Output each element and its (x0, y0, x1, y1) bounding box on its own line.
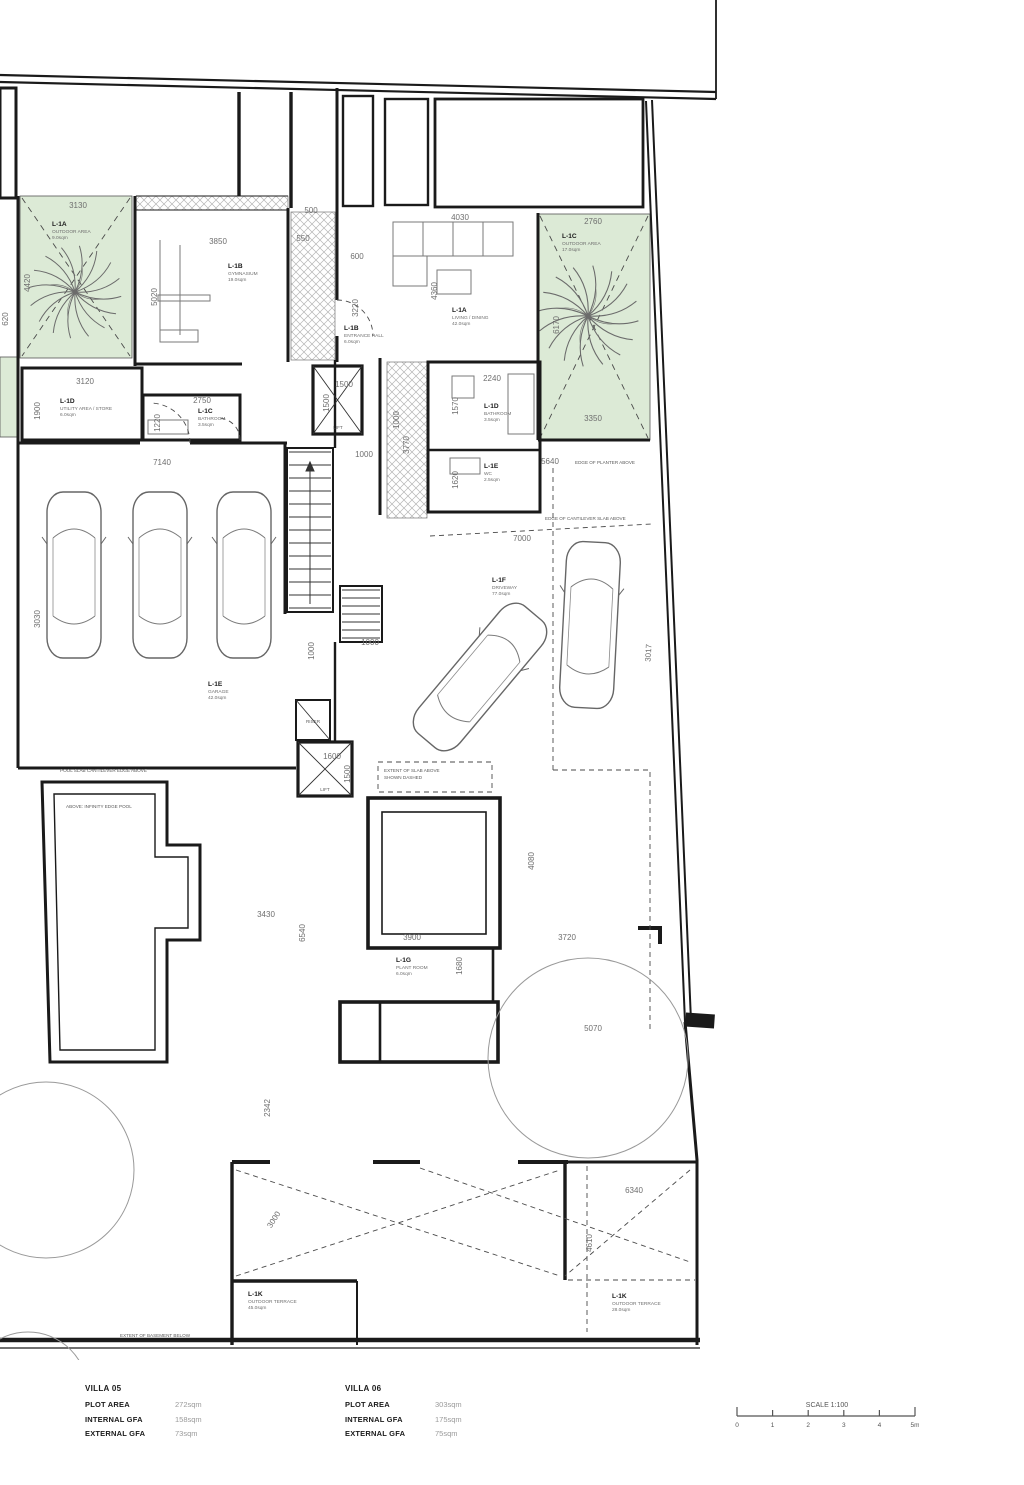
annotation-text: EXTENT OF SLAB ABOVE (384, 768, 440, 773)
dimension-text: 5070 (584, 1024, 602, 1033)
car-symbol (402, 593, 558, 761)
room-label: L-1B GYMNASIUM 19.0sqm (228, 263, 258, 283)
room-label-name: BATHROOM (198, 416, 225, 422)
room-label: L-1D BATHROOM 3.5sqm (484, 403, 511, 423)
room-label-area: 19.0sqm (228, 277, 246, 283)
dimension-text: 1500 (322, 394, 331, 412)
scale-tick-label: 5m (910, 1422, 919, 1429)
table-key: EXTERNAL GFA (345, 1427, 435, 1442)
table-row: INTERNAL GFA 158sqm (85, 1413, 335, 1428)
table-key: INTERNAL GFA (85, 1413, 175, 1428)
dimension-text: 4420 (23, 274, 32, 292)
villa05-title: VILLA 05 (85, 1384, 335, 1393)
room-label-name: OUTDOOR TERRACE (248, 1299, 297, 1305)
dimension-text: 600 (350, 252, 364, 261)
table-row: EXTERNAL GFA 75sqm (345, 1427, 595, 1442)
room-label-name: DRIVEWAY (492, 585, 518, 591)
table-row: PLOT AREA 272sqm (85, 1398, 335, 1413)
room-label-area: 2.5sqm (484, 477, 500, 483)
villa06-summary-table: VILLA 06 PLOT AREA 303sqm INTERNAL GFA 1… (345, 1384, 595, 1442)
room-label-area: 3.5sqm (198, 422, 214, 428)
room-label: L-1G PLANT ROOM 6.0sqm (396, 957, 428, 977)
dimension-text: 3030 (33, 610, 42, 628)
dimension-text: 7140 (153, 458, 171, 467)
table-key: INTERNAL GFA (345, 1413, 435, 1428)
room-label-code: L-1E (208, 681, 223, 688)
table-value: 175sqm (435, 1413, 462, 1428)
annotation-text: ABOVE: INFINITY EDGE POOL (66, 804, 132, 809)
dimension-text: 1000 (392, 411, 401, 429)
dimension-text: 3720 (558, 933, 576, 942)
dimension-text: 1600 (323, 752, 341, 761)
room-label-code: L-1E (484, 463, 499, 470)
villa06-title: VILLA 06 (345, 1384, 595, 1393)
dimension-text: 550 (296, 234, 310, 243)
table-row: PLOT AREA 303sqm (345, 1398, 595, 1413)
annotation-text: SHOWN DASHED (384, 775, 423, 780)
room-label-name: OUTDOOR AREA (562, 241, 601, 247)
dimension-text: 1570 (451, 397, 460, 415)
car-symbol (128, 492, 192, 658)
room-label-code: L-1G (396, 957, 411, 964)
table-key: EXTERNAL GFA (85, 1427, 175, 1442)
scale-tick-label: 1 (771, 1422, 775, 1429)
room-label-name: GARAGE (208, 689, 229, 695)
room-label-area: 3.5sqm (484, 417, 500, 423)
scale-tick-label: 2 (806, 1422, 810, 1429)
scale-bar-ticks: 0 1 2 3 4 5m (735, 1422, 919, 1429)
floor-plan-page: { "colors": { "wall": "#1a1a1a", "green"… (0, 0, 1024, 1485)
room-label-name: PLANT ROOM (396, 965, 428, 971)
room-label-name: OUTDOOR AREA (52, 229, 91, 235)
room-label-code: L-1D (484, 403, 499, 410)
dimension-text: 3017 (644, 643, 654, 662)
dimension-text: 3130 (69, 201, 87, 210)
dimension-text: 2342 (263, 1099, 272, 1117)
room-label-area: 6.0sqm (396, 971, 412, 977)
room-label-code: L-1B (228, 263, 243, 270)
dimension-text: 3000 (265, 1209, 282, 1229)
dimension-text: 1220 (153, 414, 162, 432)
table-value: 158sqm (175, 1413, 202, 1428)
room-label-name: ENTRANCE HALL (344, 333, 384, 339)
dimension-text: 3900 (403, 933, 421, 942)
table-value: 75sqm (435, 1427, 458, 1442)
room-label-area: 6.0sqm (60, 412, 76, 418)
scale-tick-label: 3 (842, 1422, 846, 1429)
table-key: PLOT AREA (85, 1398, 175, 1413)
dimension-text: 3770 (402, 436, 411, 454)
room-label: L-1K OUTDOOR TERRACE 28.0sqm (612, 1293, 661, 1313)
room-label-code: L-1A (452, 307, 467, 314)
dimension-text: 3850 (209, 237, 227, 246)
dimension-text: 4610 (585, 1234, 594, 1252)
dimension-text: 1000 (355, 450, 373, 459)
scale-bar: SCALE 1:100 0 1 2 3 4 5m (735, 1398, 919, 1443)
scale-bar-label: SCALE 1:100 (806, 1402, 849, 1409)
table-value: 73sqm (175, 1427, 198, 1442)
dimension-text: 4360 (430, 282, 439, 300)
dimension-text: 1000 (307, 642, 316, 660)
dimension-text: 1000 (361, 638, 379, 647)
room-label-code: L-1D (60, 398, 75, 405)
annotation-text: EXTENT OF BASEMENT BELOW (120, 1333, 191, 1338)
scale-tick-label: 0 (735, 1422, 739, 1429)
table-row: EXTERNAL GFA 73sqm (85, 1427, 335, 1442)
room-label: L-1D UTILITY AREA / STORE 6.0sqm (60, 398, 112, 418)
room-label-area: 9.0sqm (52, 235, 68, 241)
dimension-text: 4080 (527, 852, 536, 870)
annotation-text: EDGE OF PLANTER ABOVE (575, 460, 635, 465)
dimension-text: 1620 (451, 471, 460, 489)
dimension-text: 3350 (584, 414, 602, 423)
villa05-summary-table: VILLA 05 PLOT AREA 272sqm INTERNAL GFA 1… (85, 1384, 335, 1442)
dimension-text: 3220 (351, 299, 360, 317)
landscape-circles (0, 958, 688, 1360)
dimension-text: 4030 (451, 213, 469, 222)
room-label: L-1F DRIVEWAY 77.0sqm (492, 577, 518, 597)
annotations-layer: POOL SLAB CANTILEVER EDGE ABOVE ABOVE: I… (60, 425, 635, 1338)
room-label-code: L-1K (612, 1293, 627, 1300)
room-label-area: 45.0sqm (248, 1305, 266, 1311)
furniture-layer (148, 222, 534, 474)
annotation-text: LIFT (320, 787, 330, 792)
annotation-text: LIFT (333, 425, 343, 430)
room-label-name: WC (484, 471, 493, 477)
dimension-text: 1500 (343, 765, 352, 783)
dimension-text: 6540 (298, 924, 307, 942)
room-label-area: 6.0sqm (344, 339, 360, 345)
dimension-text: 500 (304, 206, 318, 215)
room-label-name: BATHROOM (484, 411, 511, 417)
room-label: L-1C BATHROOM 3.5sqm (198, 408, 225, 428)
room-label: L-1A LIVING / DINING 42.0sqm (452, 307, 489, 327)
room-label-name: UTILITY AREA / STORE (60, 406, 112, 412)
car-symbol (42, 492, 106, 658)
table-row: INTERNAL GFA 175sqm (345, 1413, 595, 1428)
dimension-text: 2750 (193, 396, 211, 405)
scale-tick-label: 4 (878, 1422, 882, 1429)
room-label-name: LIVING / DINING (452, 315, 489, 321)
dimension-text: 6340 (625, 1186, 643, 1195)
room-label: L-1K OUTDOOR TERRACE 45.0sqm (248, 1291, 297, 1311)
dimension-text: 6170 (552, 316, 561, 334)
room-label: L-1E WC 2.5sqm (484, 463, 500, 483)
dimension-text: 3430 (257, 910, 275, 919)
annotation-text: RISER (306, 719, 321, 724)
dimension-text: 1900 (33, 402, 42, 420)
dimension-text: 7000 (513, 534, 531, 543)
room-label: L-1B ENTRANCE HALL 6.0sqm (344, 325, 384, 345)
car-symbol (212, 492, 276, 658)
room-label-code: L-1F (492, 577, 506, 584)
dimension-text: 5640 (541, 457, 559, 466)
dimension-text: 2760 (584, 217, 602, 226)
annotation-text: EDGE OF CANTILEVER SLAB ABOVE (545, 516, 626, 521)
annotation-text: POOL SLAB CANTILEVER EDGE ABOVE (60, 768, 147, 773)
table-key: PLOT AREA (345, 1398, 435, 1413)
room-label-code: L-1C (562, 233, 577, 240)
room-label-area: 17.0sqm (562, 247, 580, 253)
room-label-name: OUTDOOR TERRACE (612, 1301, 661, 1307)
dimension-text: 2240 (483, 374, 501, 383)
room-label-name: GYMNASIUM (228, 271, 258, 277)
room-label-area: 42.0sqm (208, 695, 226, 701)
dimension-text: 1500 (335, 380, 353, 389)
dimension-text: 5020 (150, 288, 159, 306)
dimension-text: 1680 (455, 957, 464, 975)
room-label-code: L-1B (344, 325, 359, 332)
table-value: 303sqm (435, 1398, 462, 1413)
room-label-area: 77.0sqm (492, 591, 510, 597)
room-label-area: 42.0sqm (452, 321, 470, 327)
car-symbol (554, 540, 627, 709)
room-label: L-1E GARAGE 42.0sqm (208, 681, 229, 701)
hatch-layer (136, 196, 427, 518)
room-label-area: 28.0sqm (612, 1307, 630, 1313)
dimension-text: 3120 (76, 377, 94, 386)
room-label-code: L-1C (198, 408, 213, 415)
floor-plan-canvas: 3130 4420 3850 5020 500 550 3120 1900 27… (0, 0, 1024, 1360)
room-label-code: L-1K (248, 1291, 263, 1298)
table-value: 272sqm (175, 1398, 202, 1413)
room-label-code: L-1A (52, 221, 67, 228)
dimension-text: 620 (1, 312, 10, 326)
